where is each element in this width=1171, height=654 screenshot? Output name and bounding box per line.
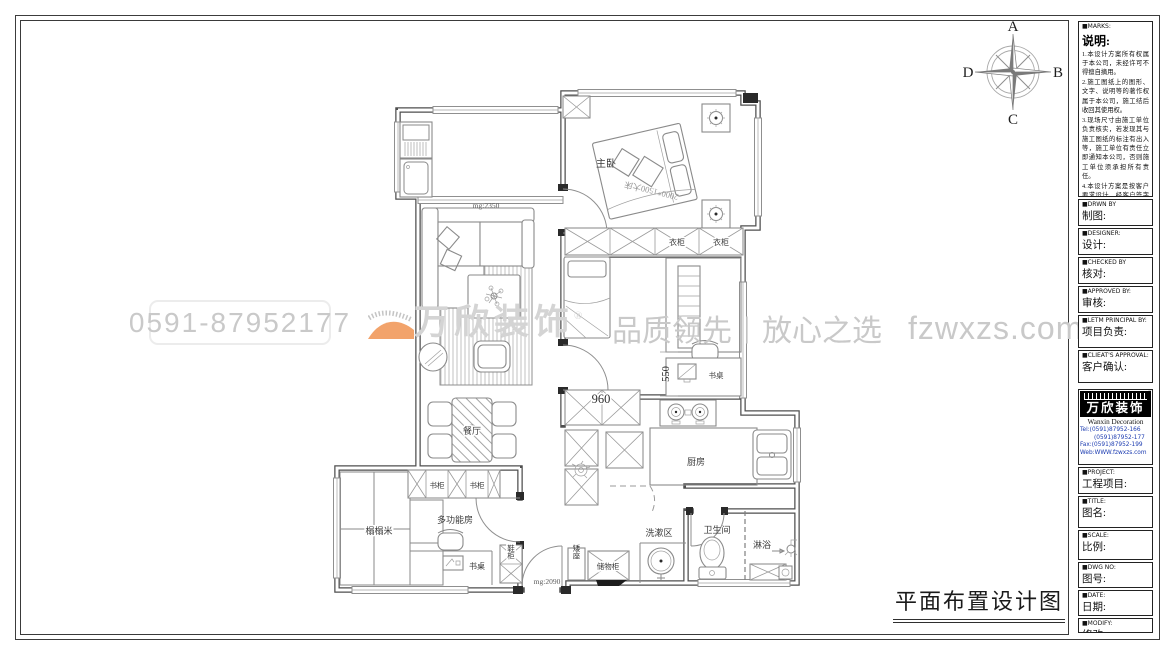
- door-multi-room: [476, 498, 520, 542]
- title-header: ■TITLE:: [1082, 499, 1149, 506]
- title-label: 图名:: [1082, 508, 1149, 520]
- column: [721, 507, 728, 515]
- drawing-title-text: 平面布置设计图: [893, 584, 1065, 616]
- company-tel-2: (0591)87952-177: [1080, 435, 1151, 443]
- title-underline: [893, 619, 1065, 620]
- room-label-multi: 多功能房: [437, 514, 473, 525]
- desk-label-multi: 书桌: [469, 561, 485, 571]
- window: [578, 90, 736, 97]
- date-label: 日期:: [1082, 602, 1149, 614]
- project-label: 工程项目:: [1082, 479, 1149, 491]
- company-tel-1: Tel:(0591)87952-166: [1080, 427, 1151, 435]
- compass-letter-b: B: [1053, 65, 1063, 81]
- scale-header: ■SCALE:: [1082, 533, 1149, 540]
- entry: 鞋柜 矮座 储物柜: [500, 543, 629, 586]
- room-label-wash: 洗漱区: [645, 527, 672, 538]
- checked-by-label: 核对:: [1082, 269, 1149, 281]
- floor-plan: 餐厅 2000*1500大床: [0, 0, 1171, 654]
- wardrobe-row: 衣柜 衣柜: [565, 228, 743, 255]
- dimension-960: 960: [592, 392, 611, 406]
- single-bed: [564, 257, 610, 338]
- study-chair: [438, 530, 463, 551]
- designer-label: 设计:: [1082, 240, 1149, 252]
- door-master: [563, 189, 607, 233]
- scale-box: ■SCALE: 比例:: [1078, 530, 1153, 560]
- dimension-2090: mg:2090: [534, 577, 561, 586]
- compass-letter-c: C: [1008, 112, 1018, 128]
- low-seat-label: 矮座: [572, 543, 581, 561]
- dimension-550: 550: [661, 366, 672, 382]
- title-box: ■TITLE: 图名:: [1078, 496, 1153, 528]
- date-box: ■DATE: 日期:: [1078, 590, 1153, 616]
- window: [794, 428, 801, 482]
- designer-header: ■DESIGNER:: [1082, 231, 1149, 238]
- principal-label: 项目负责:: [1082, 327, 1149, 339]
- approved-by-box: ■APPROVED BY: 审核:: [1078, 286, 1153, 313]
- checked-by-box: ■CHECKED BY 核对:: [1078, 257, 1153, 284]
- bedroom2: 书桌 550: [564, 257, 741, 396]
- title-block: ■MARKS: 说明: 1.本设计方案所有权属于本公司，未经许可不得擅自摘用。 …: [1078, 21, 1153, 633]
- bookcase-row: 书柜 书柜: [408, 470, 500, 498]
- balcony: [400, 122, 432, 197]
- nightstand: [702, 200, 730, 228]
- project-header: ■PROJECT:: [1082, 470, 1149, 477]
- checked-by-header: ■CHECKED BY: [1082, 260, 1149, 267]
- marks-note-2: 2.施工图纸上的图形、文字、说明等的著作权属于本公司，施工结后收回其使用权。: [1082, 78, 1149, 116]
- compass-letter-a: A: [1008, 19, 1019, 35]
- window: [334, 478, 341, 578]
- registered-mark: ®: [1147, 389, 1152, 393]
- dining-chair: [428, 402, 452, 426]
- desk: 书桌: [666, 358, 741, 396]
- wardrobe-label-right: 衣柜: [713, 237, 729, 247]
- window: [352, 587, 468, 594]
- low-seat: 矮座: [568, 543, 585, 580]
- column: [513, 586, 523, 594]
- drawing-title: 平面布置设计图: [893, 584, 1065, 623]
- ac-cabinet: [563, 96, 590, 118]
- window: [755, 118, 762, 216]
- hall-cabinet: [606, 432, 643, 468]
- bathroom: 卫生间: [699, 524, 731, 579]
- floor-drain: [779, 566, 792, 579]
- dwg-no-header: ■DWG NO:: [1082, 565, 1149, 572]
- modify-header: ■MODIFY:: [1082, 621, 1149, 628]
- client-approval-box: ■CLIEAT'S APPROVAL: 客户确认:: [1078, 350, 1153, 383]
- ottoman: [474, 341, 510, 372]
- approved-by-header: ■APPROVED BY:: [1082, 289, 1149, 296]
- company-logo-box: ® 万欣装饰 Wanxin Decoration Tel:(0591)87952…: [1078, 389, 1153, 465]
- approved-by-label: 审核:: [1082, 298, 1149, 310]
- room-label-kitchen: 厨房: [687, 456, 705, 467]
- room-label-master: 主卧: [596, 157, 616, 170]
- marks-header: ■MARKS:: [1082, 24, 1149, 31]
- project-box: ■PROJECT: 工程项目:: [1078, 467, 1153, 494]
- room-label-bathroom: 卫生间: [703, 524, 730, 535]
- dimension-2350: mg:2350: [473, 201, 500, 210]
- drawn-by-label: 制图:: [1082, 211, 1149, 223]
- master-bed: [592, 123, 697, 219]
- logo-ruler-icon: [1084, 393, 1147, 400]
- principal-box: ■LETM PRINCIPAL BY: 项目负责:: [1078, 315, 1153, 348]
- company-web: Web:WWW.fzwxzs.com: [1080, 450, 1151, 458]
- room-label-dining: 餐厅: [463, 425, 481, 436]
- stove: [660, 400, 716, 426]
- dining-chair: [492, 434, 516, 458]
- desk-label-bedroom: 书桌: [709, 370, 724, 380]
- shower-area: 淋浴: [745, 511, 797, 583]
- window: [698, 580, 790, 587]
- kitchen-sink: [753, 430, 791, 479]
- client-approval-header: ■CLIEAT'S APPROVAL:: [1082, 353, 1149, 360]
- side-table: [419, 343, 447, 371]
- bookcase-label-right: 书柜: [470, 480, 485, 490]
- door-bedroom2: [563, 345, 608, 390]
- shoe-cabinet-label: 鞋柜: [506, 543, 515, 561]
- shoe-cabinet: 鞋柜: [500, 543, 522, 583]
- company-fax: Fax:(0591)87952-199: [1080, 442, 1151, 450]
- laptop-icon: [443, 556, 463, 570]
- compass-letter-d: D: [963, 65, 974, 81]
- wardrobe-label-left: 衣柜: [669, 237, 685, 247]
- toilet: [699, 537, 726, 579]
- wash-area: 洗漱区: [640, 527, 686, 583]
- company-name-en: Wanxin Decoration: [1080, 418, 1151, 426]
- column: [558, 184, 568, 191]
- shelf-unit: [666, 258, 741, 352]
- hall-cabinet-960: 960: [565, 390, 640, 425]
- client-approval-label: 客户确认:: [1082, 362, 1149, 374]
- coffee-table: [468, 275, 520, 318]
- dining-chair: [428, 434, 452, 458]
- column: [743, 93, 758, 103]
- hall-cabinet: [565, 430, 598, 466]
- hall-cabinet: [565, 469, 598, 505]
- column: [516, 492, 524, 500]
- company-name: 万欣装饰: [1082, 401, 1149, 415]
- compass: A B C D: [963, 19, 1063, 128]
- modify-label: 修改:: [1082, 630, 1149, 633]
- bookcase-label-left: 书柜: [430, 480, 445, 490]
- drawn-by-header: ■DRWN BY: [1082, 202, 1149, 209]
- storage-cabinet-label: 储物柜: [597, 561, 620, 571]
- column: [686, 507, 693, 515]
- company-logo: ® 万欣装饰: [1080, 391, 1151, 417]
- dining-area: 餐厅: [428, 398, 516, 462]
- marks-title: 说明:: [1082, 32, 1149, 49]
- marks-box: ■MARKS: 说明: 1.本设计方案所有权属于本公司，未经许可不得擅自摘用。 …: [1078, 21, 1153, 197]
- storage-cabinet: 储物柜: [588, 551, 629, 580]
- modify-box: ■MODIFY: 修改:: [1078, 618, 1153, 633]
- dining-chair: [492, 402, 516, 426]
- marks-note-3: 3.现场尺寸由施工单位负责核实，若发现其与施工图纸的标注有出入等，施工单位有责任…: [1082, 116, 1149, 182]
- scale-label: 比例:: [1082, 542, 1149, 554]
- washing-machine: [400, 159, 432, 197]
- marks-note-1: 1.本设计方案所有权属于本公司，未经许可不得擅自摘用。: [1082, 50, 1149, 78]
- designer-box: ■DESIGNER: 设计:: [1078, 228, 1153, 255]
- marks-note-4: 4.本设计方案是按客户要求设计，经客户签字即视为同意认可，不得随意更改。: [1082, 182, 1149, 197]
- master-bedroom: 2000*1500大床 衣柜 衣柜 主卧: [563, 96, 743, 255]
- nightstand: [702, 104, 730, 132]
- principal-header: ■LETM PRINCIPAL BY:: [1082, 318, 1149, 325]
- room-label-shower: 淋浴: [753, 539, 771, 550]
- room-label-tatami: 榻榻米: [365, 525, 392, 536]
- drawing-sheet: 餐厅 2000*1500大床: [0, 0, 1171, 654]
- dwg-no-label: 图号:: [1082, 574, 1149, 586]
- shower-arrow: [772, 549, 784, 553]
- multi-function-room: 榻榻米 书柜 书柜 多功能房 书桌: [340, 470, 500, 585]
- title-underline: [893, 622, 1065, 623]
- wash-basin: [648, 548, 674, 580]
- hallway: 960: [565, 390, 643, 505]
- drawn-by-box: ■DRWN BY 制图:: [1078, 199, 1153, 226]
- date-header: ■DATE:: [1082, 593, 1149, 600]
- dwg-no-box: ■DWG NO: 图号:: [1078, 562, 1153, 588]
- column: [561, 586, 571, 594]
- living-room: [419, 208, 534, 385]
- window: [433, 107, 558, 114]
